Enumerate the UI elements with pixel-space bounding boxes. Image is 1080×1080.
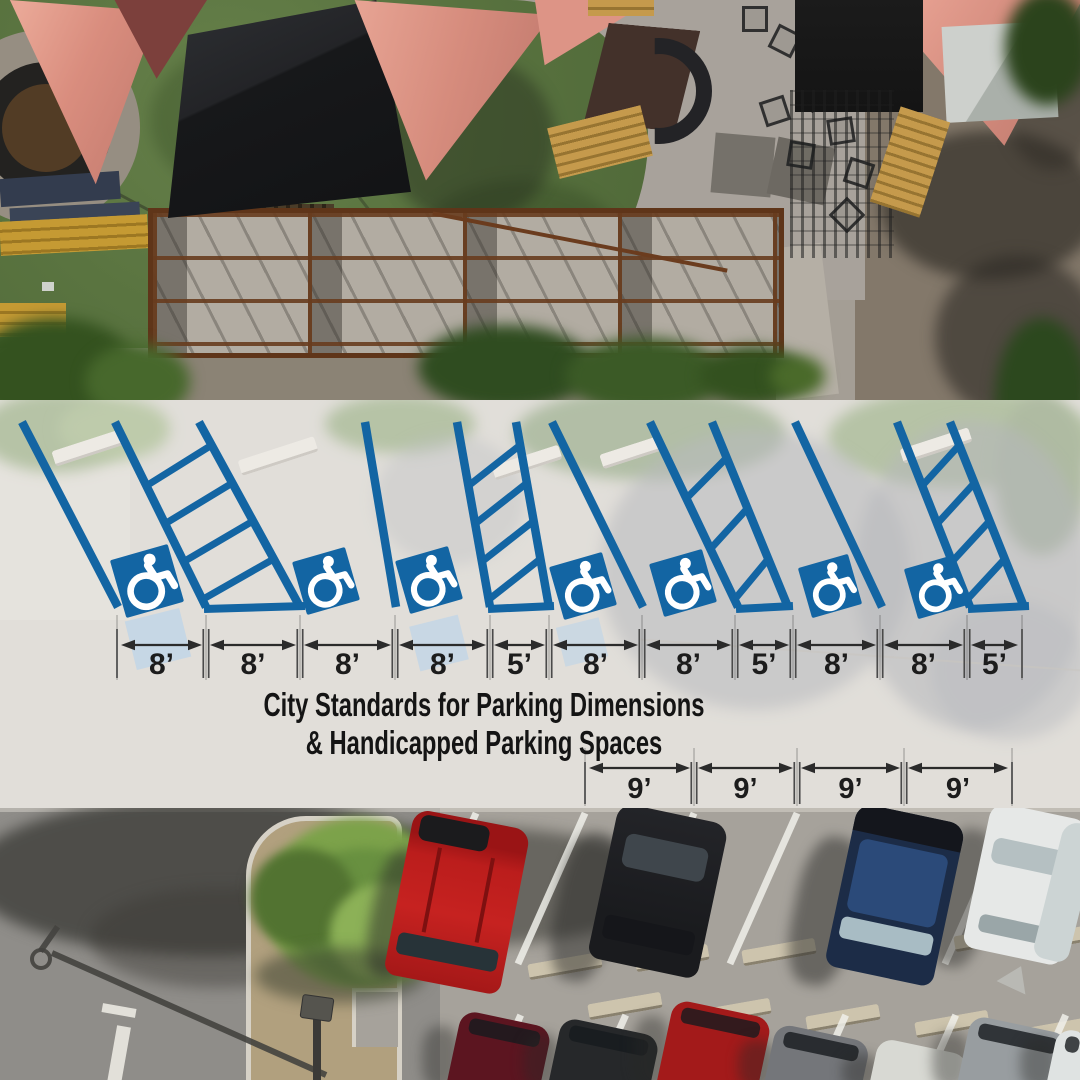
patio-aerial-photo <box>0 0 1080 400</box>
metal-chair <box>742 6 768 32</box>
diagram-title-line1: City Standards for Parking Dimensions <box>136 686 833 724</box>
bottom-car-row <box>0 808 1080 1080</box>
diagram-title: City Standards for Parking Dimensions & … <box>136 686 833 762</box>
car-windshield <box>680 1007 762 1039</box>
metal-chair <box>759 95 792 128</box>
diagram-title-line2: & Handicapped Parking Spaces <box>136 724 833 762</box>
parking-lot-aerial-photo <box>0 808 1080 1080</box>
diagram-overlay-band: 8’8’8’8’5’8’8’5’8’8’5’9’9’9’9’ City Stan… <box>0 400 1080 808</box>
car-windshield <box>1064 1035 1080 1054</box>
aerial-parking-infographic: 8’8’8’8’5’8’8’5’8’8’5’9’9’9’9’ City Stan… <box>0 0 1080 1080</box>
